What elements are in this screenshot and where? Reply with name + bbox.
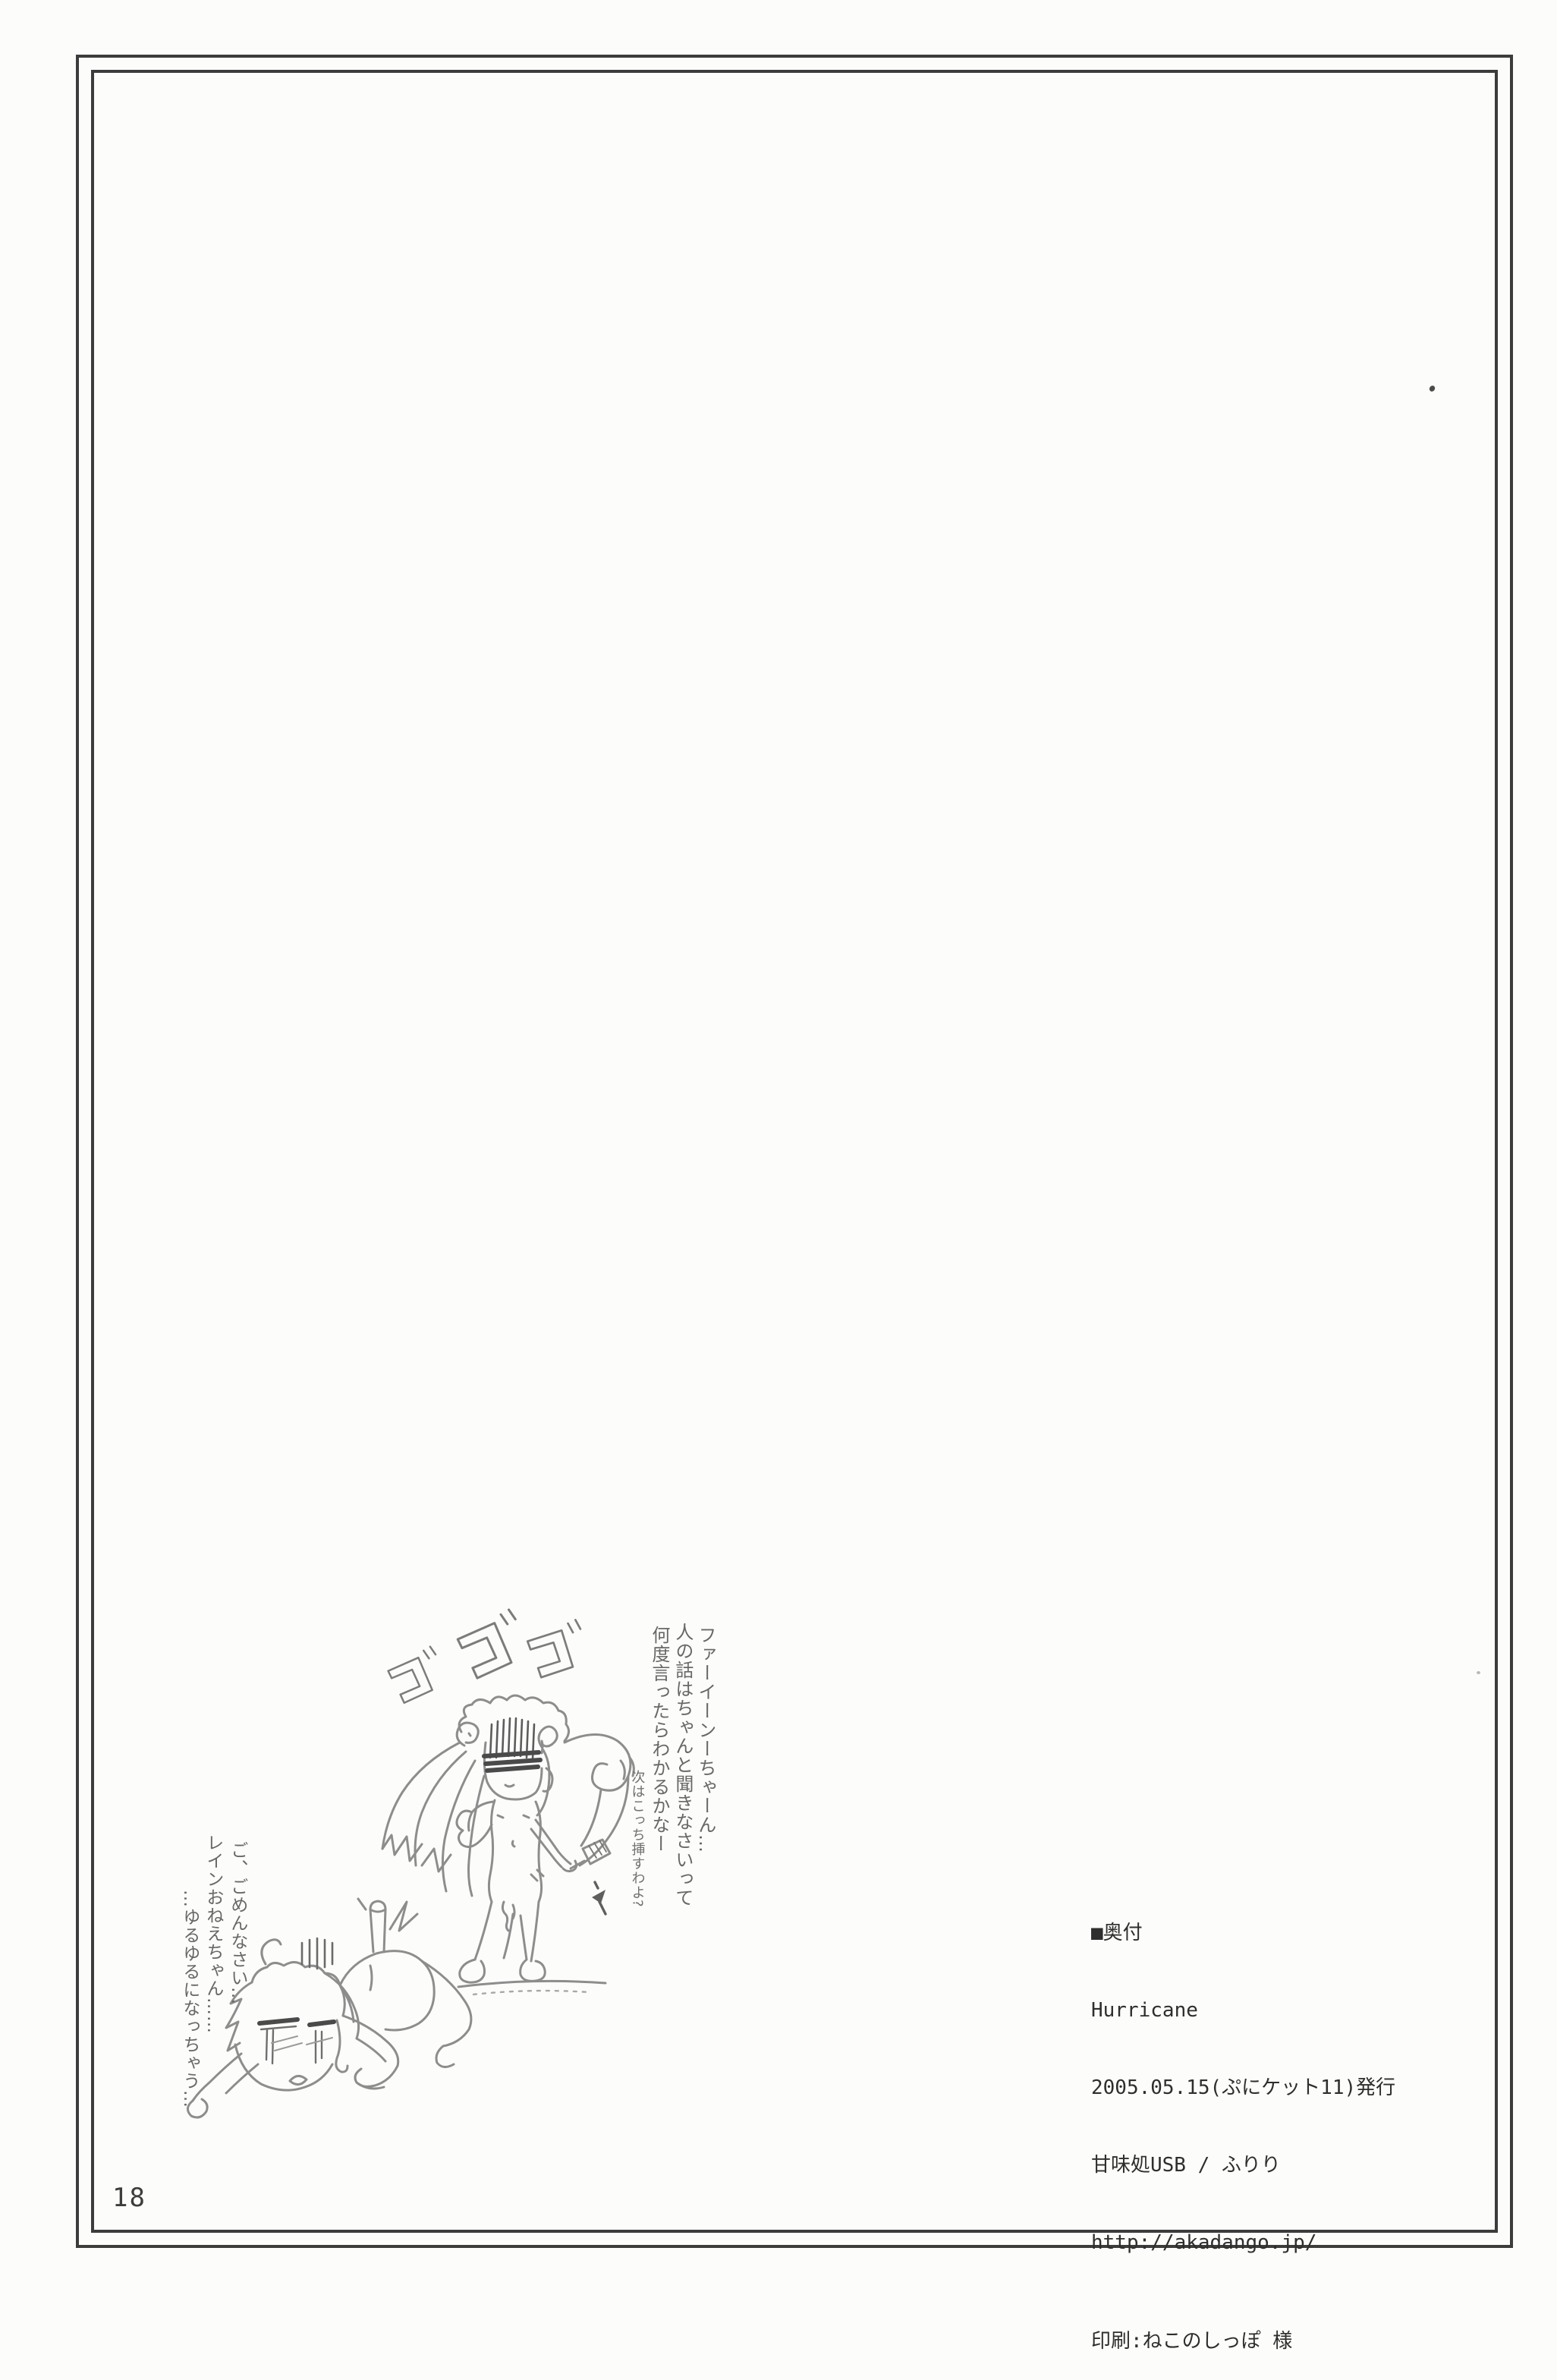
scold-small-text-column: 次はこっち挿すわよ? xyxy=(630,1770,644,1908)
standing-figure-shading xyxy=(484,1718,540,1771)
scold-text-column: 何度言ったらわかるかなー xyxy=(649,1626,668,1853)
screw-arrow-icon xyxy=(592,1882,605,1914)
colophon-url: http://akadango.jp/ xyxy=(1091,2230,1395,2256)
apology-text-column: ご、ごめんなさい… xyxy=(228,1841,247,2005)
scold-text-column: ファーイーンーちゃーん… xyxy=(695,1626,715,1853)
colophon-circle: 甘味処USB / ふりり xyxy=(1091,2152,1395,2178)
fallen-figure-shading xyxy=(259,1938,334,2064)
scanned-page: { "page": { "number": "18" }, "colors": … xyxy=(0,0,1557,2306)
apology-text-column: レインおねえちゃん…… xyxy=(203,1834,222,2034)
colophon: ■奥付 Hurricane 2005.05.15(ぷにケット11)発行 甘味処U… xyxy=(1091,1868,1395,2380)
colophon-title: Hurricane xyxy=(1091,1997,1395,2023)
colophon-published: 2005.05.15(ぷにケット11)発行 xyxy=(1091,2075,1395,2101)
apology-text-column: …ゆるゆるになっちゃう… xyxy=(180,1890,199,2108)
scold-text-column: 人の話はちゃんと聞きなさいって xyxy=(672,1623,692,1907)
page-number: 18 xyxy=(112,2183,146,2213)
colophon-printer: 印刷:ねこのしっぽ 様 xyxy=(1091,2328,1395,2354)
colophon-heading: ■奥付 xyxy=(1091,1920,1395,1946)
scanner-speck xyxy=(1477,1671,1480,1674)
